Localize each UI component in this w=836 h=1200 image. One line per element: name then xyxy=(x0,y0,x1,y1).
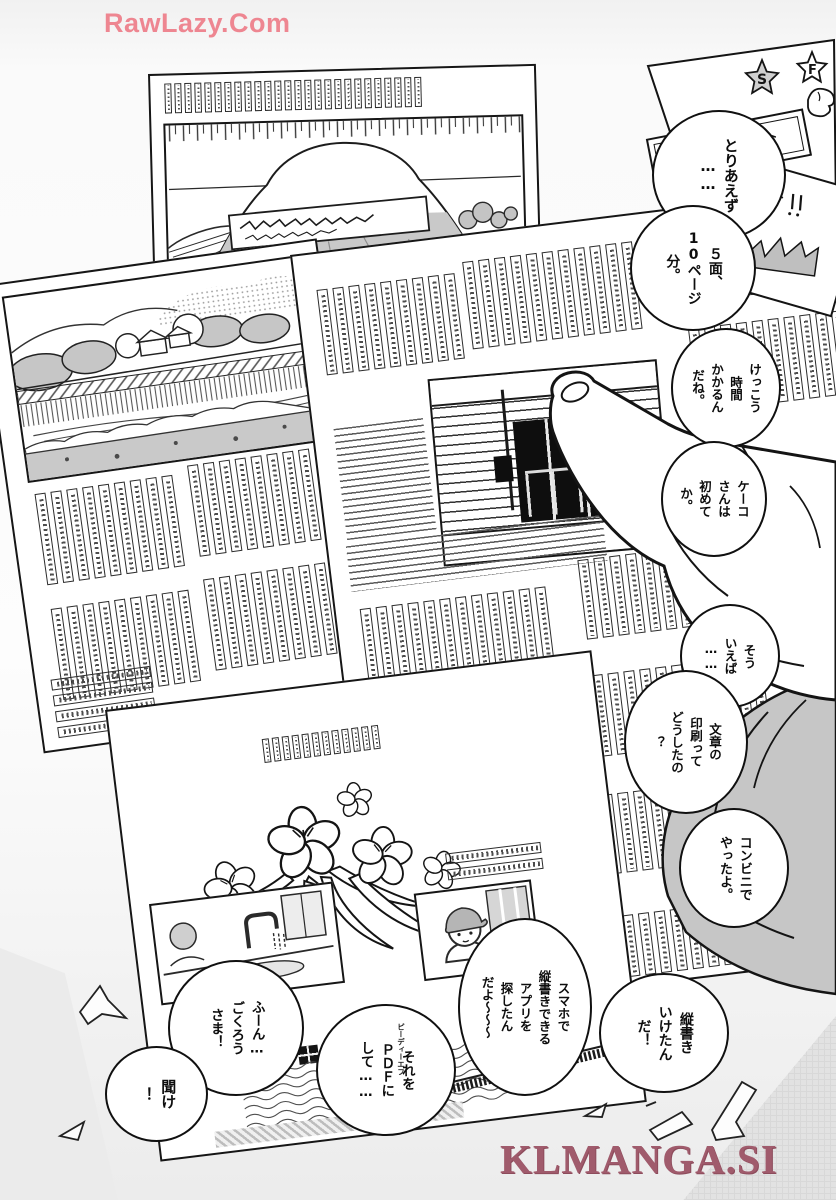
speech-bubble-insatsu: 文章の 印刷って どうしたの ？ xyxy=(624,670,748,814)
bubble-text: とりあえず …… xyxy=(696,138,742,213)
svg-text:S: S xyxy=(757,72,767,88)
speech-bubble-konbini: コンビニで やったよ。 xyxy=(679,808,789,928)
furigana-pdf: ピーディーエフ xyxy=(396,1023,407,1076)
speech-bubble-pages: ５面、 10ページ 分。 xyxy=(630,205,756,331)
bubble-text: ５面、 10ページ 分。 xyxy=(661,231,725,305)
manga-page[interactable]: S F xyxy=(0,0,836,1200)
speech-bubble-sumaho: スマホで 縦書きできる アプリを 探したん だよ～～～ xyxy=(458,918,592,1096)
hand-doodle-icon xyxy=(808,89,834,117)
speech-bubble-keeko: ケーコ さんは 初めて か。 xyxy=(661,441,767,557)
bubble-text: コンビニで やったよ。 xyxy=(714,836,754,901)
speech-bubble-kike: 聞け ！ xyxy=(105,1046,208,1142)
speech-bubble-pdf: それを ＰＤＦに して…… ピーディーエフ xyxy=(316,1004,456,1136)
svg-text:F: F xyxy=(808,63,817,78)
watermark-rawlazy: RawLazy.Com xyxy=(104,8,291,39)
bubble-text: 文章の 印刷って どうしたの ？ xyxy=(648,711,724,774)
speech-bubble-tategaki: 縦書き いけたん だ！ xyxy=(599,973,729,1093)
bubble-text: そう いえば …… xyxy=(702,637,759,675)
bubble-text: スマホで 縦書きできる アプリを 探したん だよ～～～ xyxy=(478,970,573,1045)
bubble-text: 縦書き いけたん だ！ xyxy=(632,1005,696,1061)
watermark-klmanga: KLMANGA.SI xyxy=(500,1135,778,1183)
speech-bubble-kekkou: けっこう 時間 かかるん だね。 xyxy=(671,328,781,448)
bubble-text: 聞け ！ xyxy=(134,1079,180,1109)
bubble-text: それを ＰＤＦに して…… xyxy=(355,1041,417,1100)
bubble-text: けっこう 時間 かかるん だね。 xyxy=(688,363,764,413)
bubble-text: ふーん… ごくろう さま！ xyxy=(205,1000,267,1057)
bubble-text: ケーコ さんは 初めて か。 xyxy=(676,480,752,518)
